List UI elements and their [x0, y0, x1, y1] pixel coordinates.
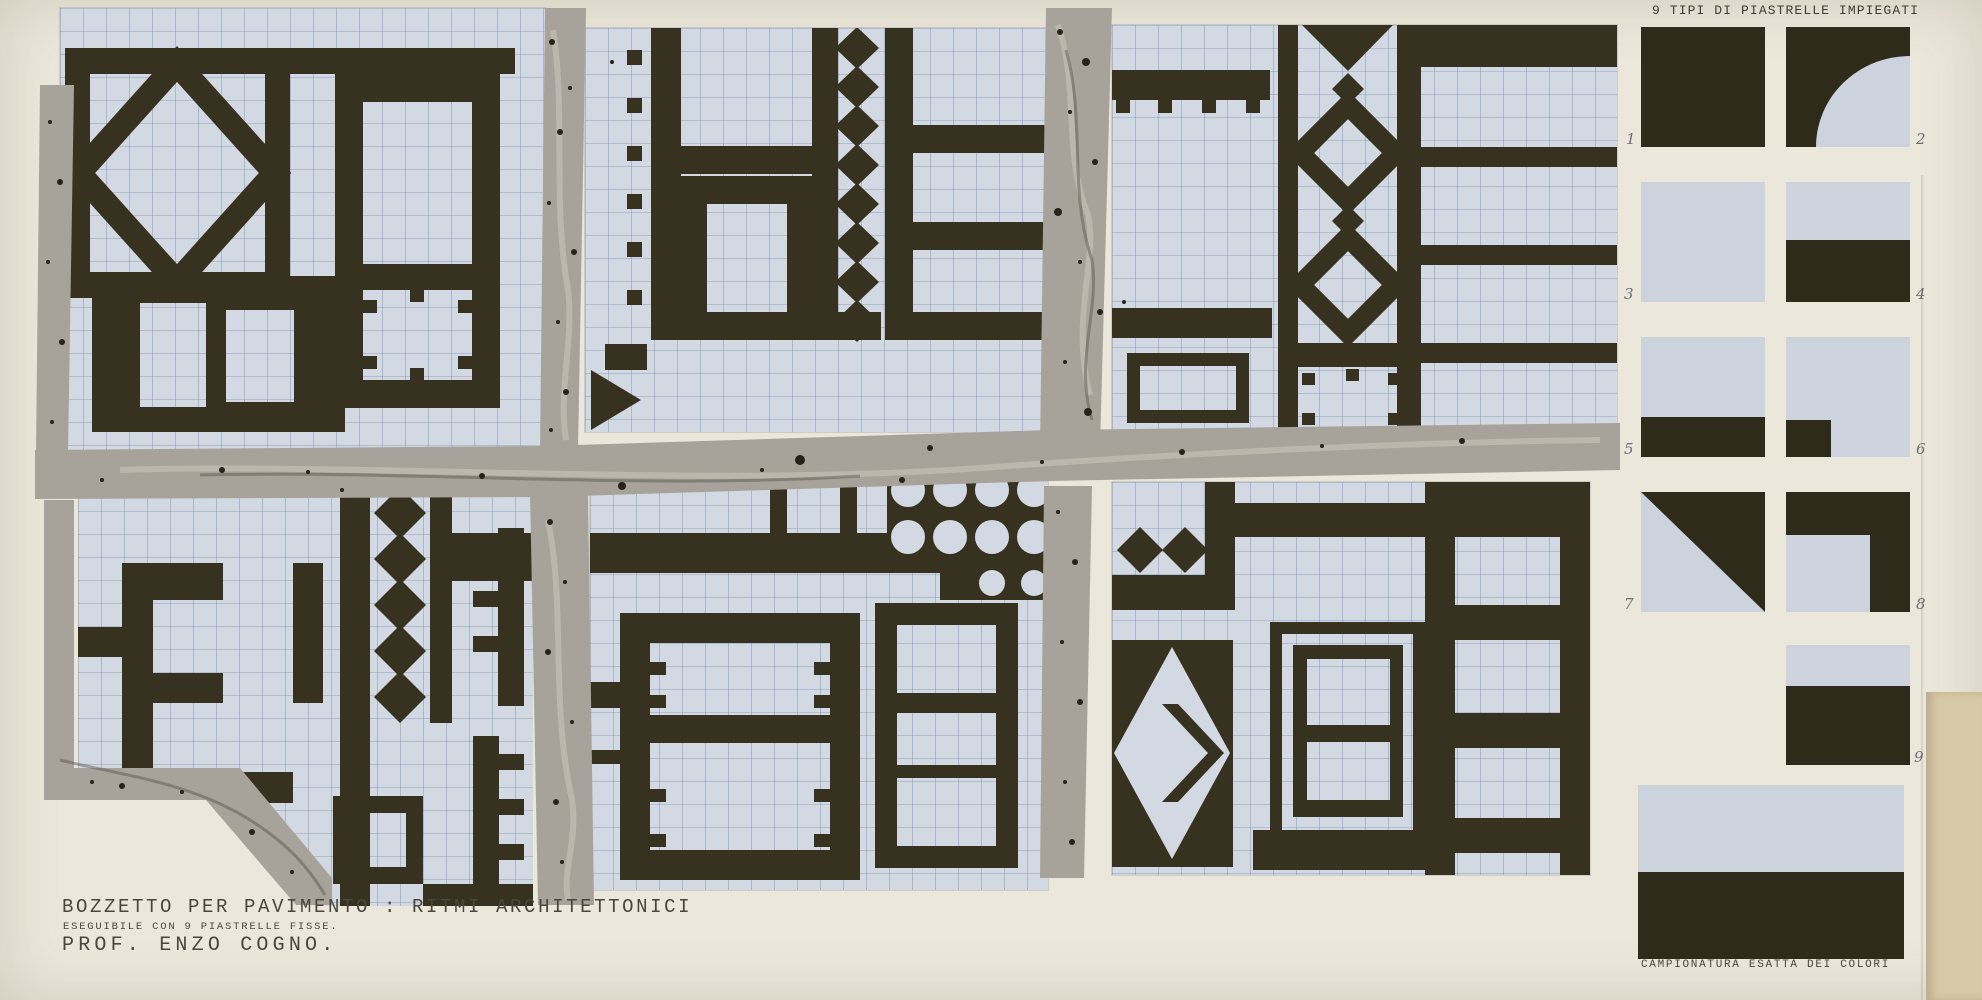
title-line-1: BOZZETTO PER PAVIMENTO : RITMI ARCHITETT…: [62, 896, 692, 918]
tile-sample-4: [1786, 182, 1910, 302]
sidebar-heading: 9 TIPI DI PIASTRELLE IMPIEGATI: [1652, 3, 1919, 18]
swatch-caption: CAMPIONATURA ESATTA DEI COLORI: [1641, 959, 1890, 971]
tile-sample-2: [1786, 27, 1910, 147]
two-thirds-fill-shape: [1786, 686, 1910, 765]
color-swatch-light: [1638, 785, 1904, 872]
quarter-circle-shape: [1816, 56, 1910, 147]
tile-number-3: 3: [1624, 285, 1634, 303]
pattern-panel-5: [590, 482, 1048, 890]
panel-1-pattern: [60, 8, 545, 455]
tile-number-1: 1: [1626, 130, 1636, 148]
pattern-panel-2: [585, 28, 1045, 432]
title-line-2: ESEGUIBILE CON 9 PIASTRELLE FISSE.: [63, 921, 338, 933]
panel-2-pattern: [585, 28, 1045, 432]
tile-sample-6: [1786, 337, 1910, 457]
corner-square-shape: [1786, 420, 1831, 457]
paper-crease: [1921, 175, 1924, 1000]
diagonal-triangle-shape: [1641, 492, 1765, 612]
tile-sample-9: [1786, 645, 1910, 765]
pattern-panel-4: [78, 488, 533, 906]
bottom-strip-shape: [1641, 417, 1765, 457]
half-fill-shape: [1786, 240, 1910, 302]
corner-window-shape: [1786, 535, 1870, 612]
tile-sample-8: [1786, 492, 1910, 612]
tile-number-2: 2: [1916, 130, 1926, 148]
tile-sample-5: [1641, 337, 1765, 457]
panel-3-pattern: [1112, 25, 1617, 430]
panel-4-pattern: [78, 488, 533, 906]
pattern-panel-3: [1112, 25, 1617, 430]
tile-sample-3: [1641, 182, 1765, 302]
title-line-3: PROF. ENZO COGNO.: [62, 934, 337, 957]
tan-paper-edge: [1926, 692, 1982, 1000]
scanned-artwork-sheet: 9 TIPI DI PIASTRELLE IMPIEGATI 1 2 3 4 5…: [0, 0, 1982, 1000]
tile-number-5: 5: [1624, 440, 1634, 458]
pattern-panel-6: [1112, 482, 1590, 875]
tile-number-7: 7: [1624, 595, 1634, 613]
tile-sample-7: [1641, 492, 1765, 612]
tile-sample-1: [1641, 27, 1765, 147]
panel-5-pattern: [590, 482, 1048, 890]
panel-6-pattern: [1112, 482, 1590, 875]
pattern-panel-1: [60, 8, 545, 455]
color-swatch-dark: [1638, 872, 1904, 959]
